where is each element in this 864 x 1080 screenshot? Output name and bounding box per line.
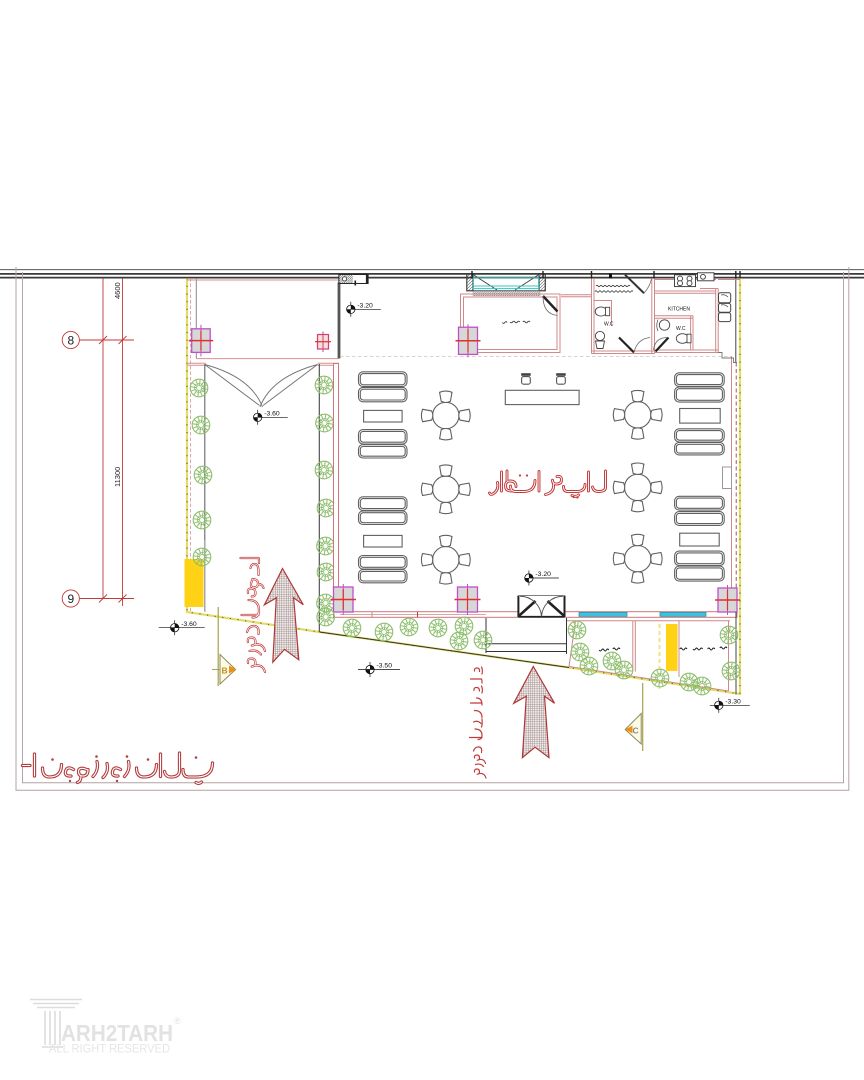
svg-text:KITCHEN: KITCHEN [668,307,690,313]
svg-text:8: 8 [67,334,74,348]
svg-text:-3.30: -3.30 [725,699,741,706]
svg-text:4600: 4600 [113,282,122,299]
svg-text:ARH2TARH: ARH2TARH [61,1020,173,1046]
svg-text:-3.50: -3.50 [377,663,393,670]
svg-text:®: ® [174,1016,181,1026]
svg-text:-3.20: -3.20 [535,571,551,578]
svg-text:-3.60: -3.60 [181,621,197,628]
svg-text:W.C: W.C [676,326,686,332]
svg-text:-3.20: -3.20 [357,303,373,310]
svg-text:-3.60: -3.60 [264,411,280,418]
svg-text:11300: 11300 [113,467,122,487]
svg-text:ALL RIGHT RESERVED: ALL RIGHT RESERVED [49,1044,170,1056]
svg-text:C: C [633,726,639,736]
svg-text:9: 9 [67,592,74,606]
svg-text:B: B [222,666,228,676]
svg-text:W.C: W.C [604,322,614,328]
